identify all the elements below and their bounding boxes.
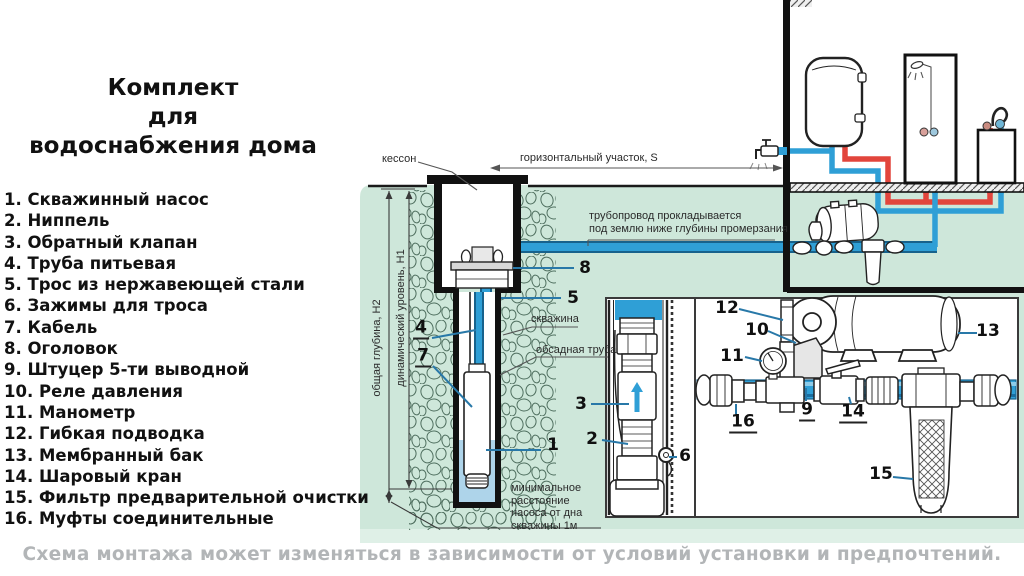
legend-item: 11. Манометр	[4, 402, 360, 423]
label-dynamic-level: динамический уровень, Н1	[395, 249, 408, 386]
callout-8: 8	[579, 259, 591, 277]
label-total-depth: общая глубина, Н2	[371, 299, 384, 396]
callout-9: 9	[799, 401, 815, 422]
callout-12: 12	[715, 299, 739, 317]
legend-item: 2. Ниппель	[4, 210, 360, 231]
page-title: Комплект для водоснабжения дома	[12, 74, 334, 161]
station-filter	[865, 252, 881, 285]
legend-item: 14. Шаровый кран	[4, 466, 360, 487]
corrugated-coupling	[866, 377, 898, 404]
callout-11: 11	[720, 347, 744, 365]
pressure-switch	[792, 338, 822, 378]
flexible-hose	[781, 300, 793, 342]
callout-10: 10	[745, 321, 769, 339]
legend-item: 15. Фильтр предварительной очистки	[4, 487, 360, 508]
label-caisson: кессон	[382, 153, 416, 166]
legend-item: 16. Муфты соединительные	[4, 508, 360, 529]
callout-1: 1	[547, 436, 559, 454]
legend-item: 6. Зажимы для троса	[4, 295, 360, 316]
component-legend: 1. Скважинный насос 2. Ниппель 3. Обратн…	[4, 189, 360, 530]
callout-14: 14	[839, 403, 867, 424]
nipple	[622, 420, 652, 456]
rope-clamp	[659, 448, 673, 462]
label-casing-pipe: обсадная труба	[536, 344, 616, 357]
legend-item: 12. Гибкая подводка	[4, 423, 360, 444]
legend-item: 4. Труба питьевая	[4, 253, 360, 274]
legend-item: 9. Штуцер 5-ти выводной	[4, 359, 360, 380]
boiler	[806, 58, 866, 146]
legend-item: 7. Кабель	[4, 317, 360, 338]
callout-6: 6	[679, 447, 691, 465]
callout-2: 2	[586, 430, 598, 448]
callout-15: 15	[869, 465, 893, 483]
callout-4: 4	[413, 319, 429, 340]
callout-5: 5	[567, 289, 579, 307]
legend-item: 1. Скважинный насос	[4, 189, 360, 210]
label-min-distance: минимальное расстояние насоса от дна скв…	[511, 482, 582, 532]
legend-item: 5. Трос из нержавеющей стали	[4, 274, 360, 295]
legend-item: 10. Реле давления	[4, 381, 360, 402]
legend-item: 8. Оголовок	[4, 338, 360, 359]
outdoor-tap	[750, 140, 787, 170]
callout-3: 3	[575, 395, 587, 413]
shower-cabin	[905, 55, 956, 183]
well-shaft	[453, 292, 501, 508]
footer-caption: Схема монтажа может изменяться в зависим…	[0, 544, 1024, 565]
callout-7: 7	[415, 347, 431, 368]
water-supply-kit-scheme: Комплект для водоснабжения дома 1. Скваж…	[0, 0, 1024, 576]
label-borehole: скважина	[531, 313, 579, 326]
label-pipeline-note: трубопровод прокладывается под землю ниж…	[589, 210, 788, 235]
callout-16: 16	[729, 413, 757, 434]
submersible-pump	[464, 364, 490, 488]
sink	[978, 108, 1015, 183]
callout-13: 13	[976, 322, 1000, 340]
legend-item: 13. Мембранный бак	[4, 445, 360, 466]
label-horizontal-section: горизонтальный участок, S	[520, 152, 658, 165]
legend-item: 3. Обратный клапан	[4, 232, 360, 253]
